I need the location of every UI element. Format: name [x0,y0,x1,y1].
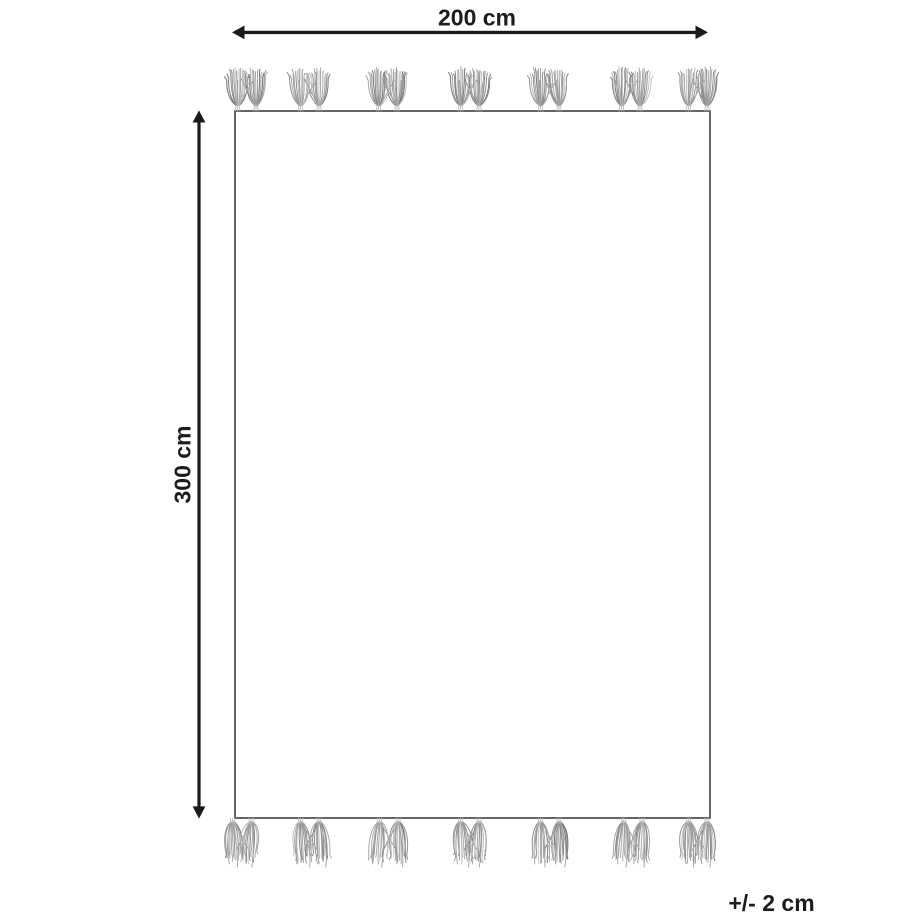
svg-text:200 cm: 200 cm [438,5,516,31]
svg-text:+/- 2 cm: +/- 2 cm [728,890,814,916]
svg-text:300 cm: 300 cm [170,425,196,503]
